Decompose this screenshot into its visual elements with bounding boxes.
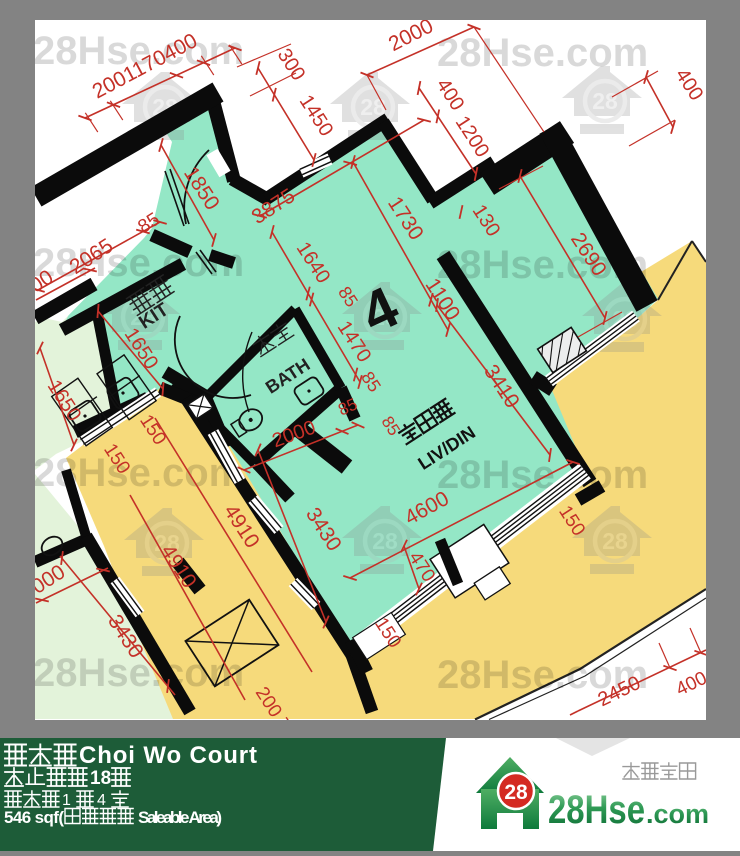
svg-text:28Hse.com: 28Hse.com [33,241,244,285]
svg-text:4: 4 [97,792,106,809]
svg-text:28Hse.com: 28Hse.com [437,31,648,75]
svg-text:.com: .com [646,799,709,829]
svg-text:28Hse.com: 28Hse.com [33,651,244,695]
svg-text:546 sqf(: 546 sqf( [4,808,64,827]
svg-text:18: 18 [90,768,111,789]
svg-text:Saleable Area): Saleable Area) [138,808,222,827]
svg-text:28Hse: 28Hse [548,788,645,832]
svg-text:28: 28 [602,528,628,554]
svg-text:28: 28 [592,88,618,114]
svg-text:28: 28 [372,528,398,554]
svg-text:Choi Wo Court: Choi Wo Court [79,742,257,769]
svg-text:28Hse.com: 28Hse.com [437,453,648,497]
svg-text:28: 28 [504,781,528,804]
svg-text:1: 1 [62,792,71,809]
